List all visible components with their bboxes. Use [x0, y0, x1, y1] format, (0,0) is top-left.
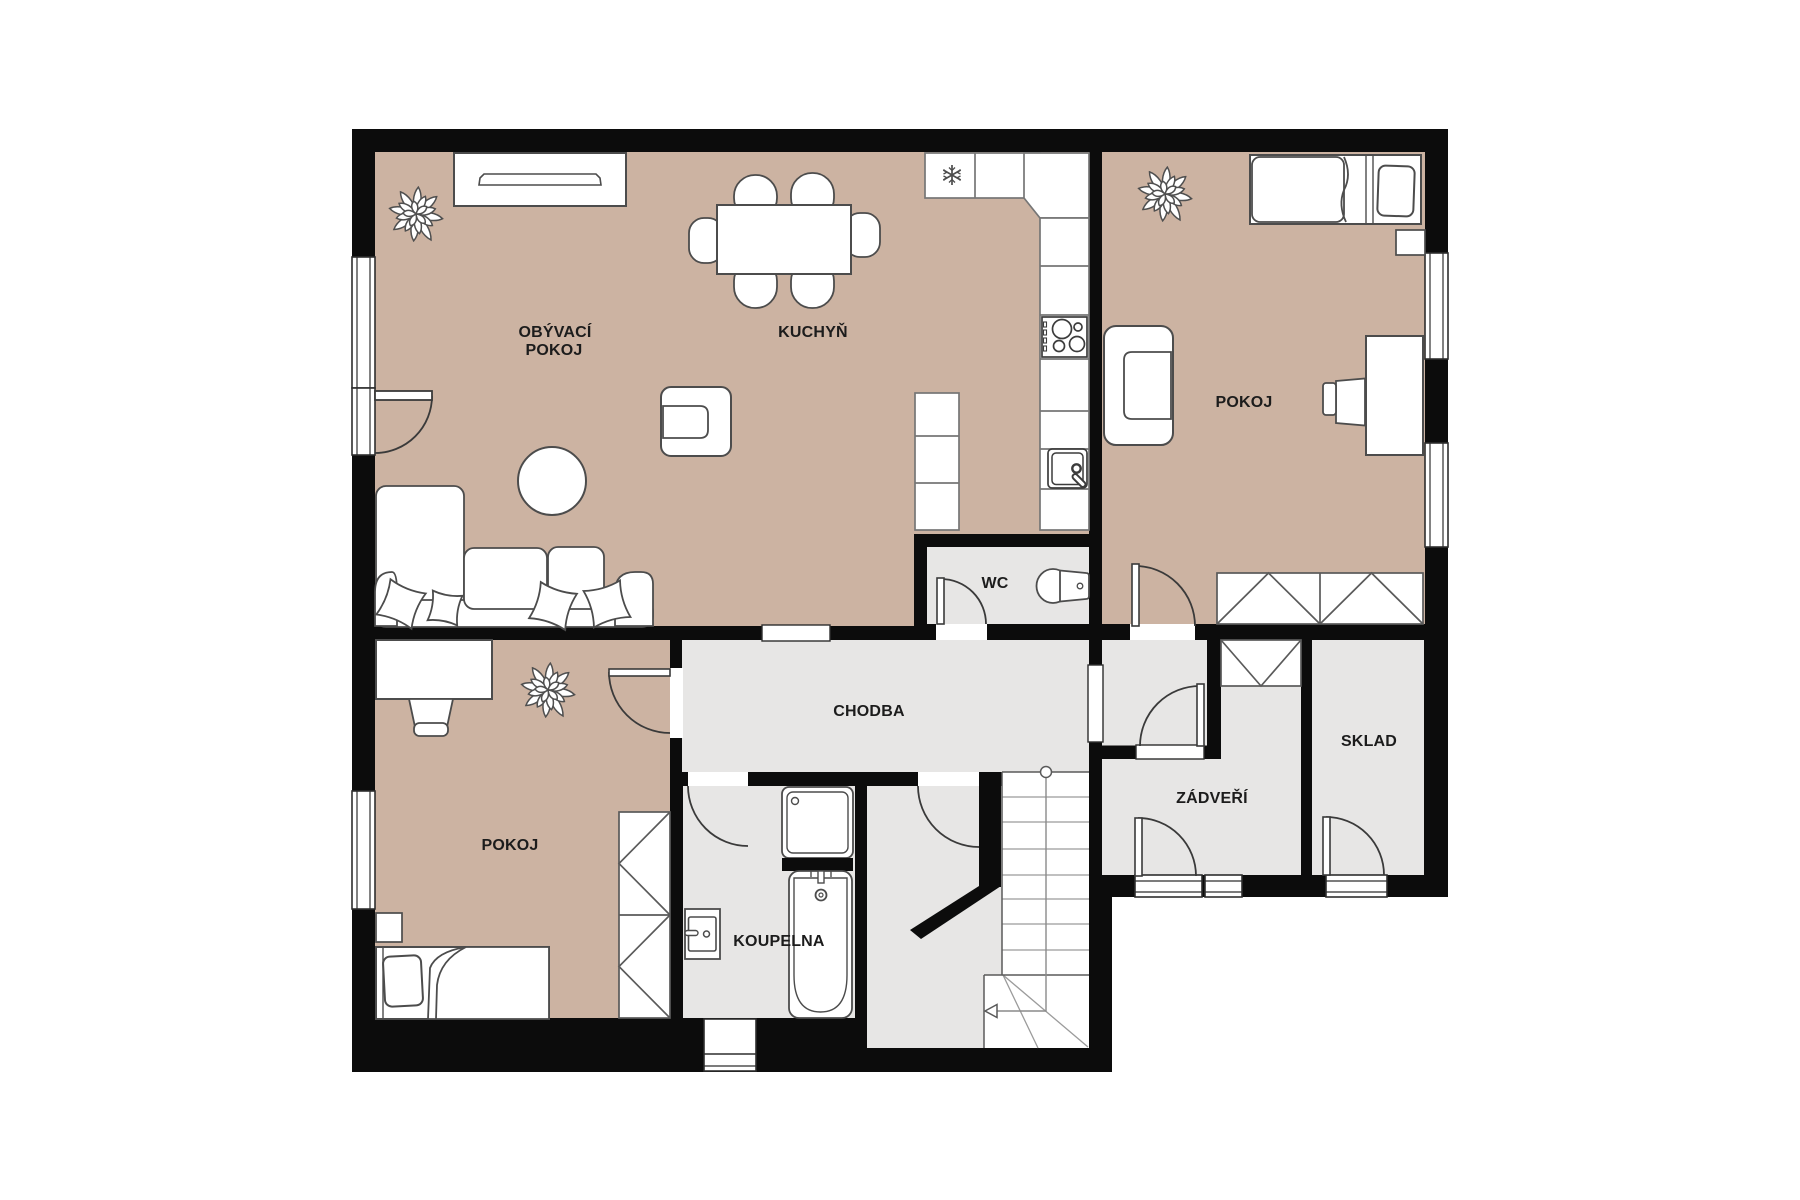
svg-text:WC: WC: [981, 575, 1008, 592]
svg-text:POKOJ: POKOJ: [481, 837, 538, 854]
svg-text:ZÁDVEŘÍ: ZÁDVEŘÍ: [1176, 788, 1248, 807]
svg-text:OBÝVACÍ: OBÝVACÍ: [518, 322, 591, 341]
svg-text:SKLAD: SKLAD: [1341, 733, 1397, 750]
svg-text:POKOJ: POKOJ: [525, 342, 582, 359]
svg-text:CHODBA: CHODBA: [833, 703, 905, 720]
svg-text:KUCHYŇ: KUCHYŇ: [778, 322, 848, 341]
svg-text:KOUPELNA: KOUPELNA: [733, 933, 825, 950]
svg-text:POKOJ: POKOJ: [1215, 394, 1272, 411]
